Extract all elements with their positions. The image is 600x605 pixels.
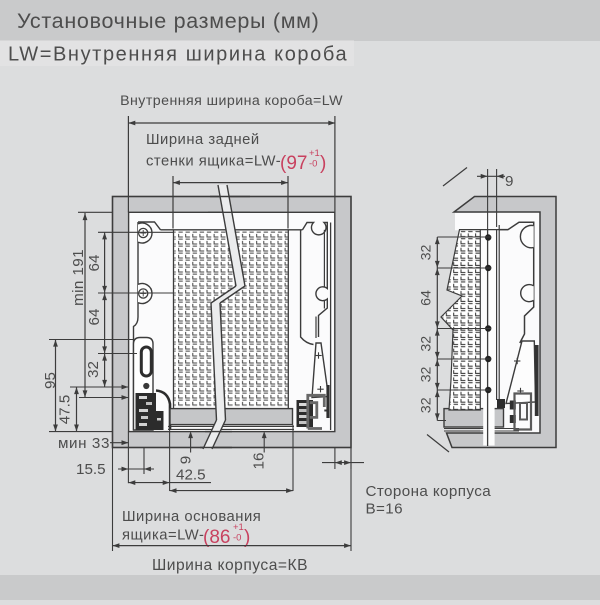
svg-text:64: 64 [86,309,103,326]
svg-text:95: 95 [42,372,59,389]
svg-text:-0: -0 [309,159,317,170]
svg-text:64: 64 [86,255,103,272]
svg-text:ящика=LW-: ящика=LW- [122,528,204,544]
svg-text:32: 32 [85,361,102,378]
svg-text:): ) [244,527,250,548]
svg-text:(86: (86 [203,527,230,548]
svg-text:): ) [320,153,326,174]
svg-text:LW=Внутренняя ширина короба: LW=Внутренняя ширина короба [8,44,348,66]
svg-text:9: 9 [505,173,513,190]
svg-text:Внутренняя ширина короба=LW: Внутренняя ширина короба=LW [120,93,343,109]
svg-text:В=16: В=16 [366,501,404,518]
svg-text:-0: -0 [233,533,241,544]
svg-text:Ширина задней: Ширина задней [146,132,260,148]
svg-text:15.5: 15.5 [76,461,106,478]
svg-text:Установочные размеры (мм): Установочные размеры (мм) [17,9,320,33]
svg-text:Ширина корпуса=КВ: Ширина корпуса=КВ [152,557,308,574]
svg-text:32: 32 [419,397,435,413]
svg-text:32: 32 [419,367,435,383]
svg-text:min 191: min 191 [70,249,87,306]
svg-text:64: 64 [419,290,435,306]
svg-text:стенки ящика=LW-: стенки ящика=LW- [146,154,281,170]
svg-text:мин 33: мин 33 [58,435,110,452]
svg-text:Сторона корпуса: Сторона корпуса [366,483,492,500]
svg-text:32: 32 [419,245,435,261]
svg-text:47.5: 47.5 [57,395,74,425]
svg-text:(97: (97 [280,153,307,174]
svg-text:+1: +1 [233,522,244,533]
svg-text:32: 32 [419,336,435,352]
svg-text:+1: +1 [309,148,320,159]
svg-text:16: 16 [251,453,268,470]
svg-text:9: 9 [178,456,195,464]
svg-text:42.5: 42.5 [176,467,206,484]
